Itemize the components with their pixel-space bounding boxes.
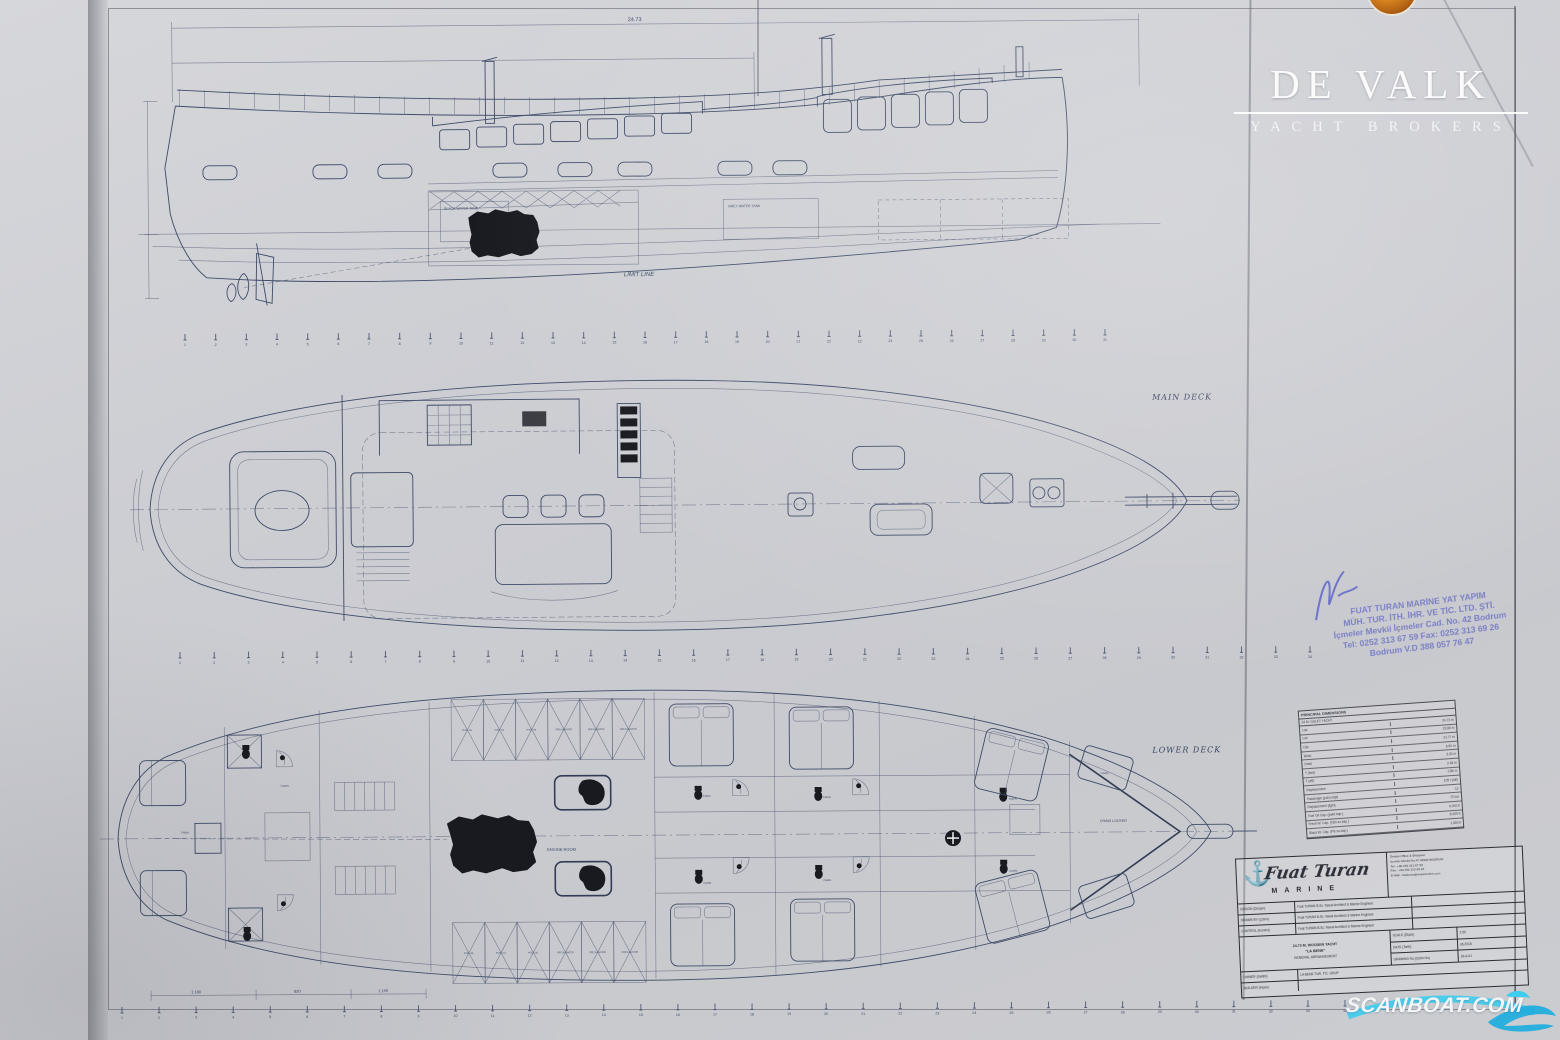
station-number: 7 — [343, 1015, 345, 1019]
station-number: 20 — [829, 658, 833, 662]
station-number: 30 — [1072, 338, 1076, 342]
station-number: 6 — [337, 342, 339, 346]
station-number: 20 — [824, 1012, 828, 1016]
station-number: 10 — [486, 659, 490, 663]
station-number: 31 — [1232, 1010, 1236, 1014]
station-number: 1 — [179, 661, 181, 665]
station-number: 10 — [454, 1014, 458, 1018]
station-number: 24 — [972, 1011, 976, 1015]
station-number: 13 — [565, 1013, 569, 1017]
station-number: 28 — [1103, 656, 1107, 660]
scanboat-watermark: SCANBOAT.COM — [1338, 982, 1560, 1038]
station-number: 15 — [639, 1013, 643, 1017]
station-number: 29 — [1042, 338, 1046, 342]
station-number: 14 — [582, 341, 586, 345]
station-number: 3 — [247, 661, 249, 665]
station-number: 33 — [1274, 655, 1278, 659]
station-number: 11 — [521, 659, 525, 663]
station-number: 16 — [643, 341, 647, 345]
station-number: 29 — [1158, 1010, 1162, 1014]
station-number: 26 — [1047, 1011, 1051, 1015]
station-number: 15 — [612, 341, 616, 345]
station-number: 17 — [726, 658, 730, 662]
station-number: 16 — [692, 658, 696, 662]
station-number: 16 — [676, 1013, 680, 1017]
station-number: 9 — [417, 1014, 419, 1018]
builder-sub-name: MARINE — [1271, 885, 1341, 895]
station-number: 25 — [1009, 1011, 1013, 1015]
station-number: 9 — [429, 342, 431, 346]
station-number: 13 — [589, 659, 593, 663]
station-number: 22 — [827, 340, 831, 344]
station-number: 4 — [282, 660, 284, 664]
station-number: 23 — [858, 339, 862, 343]
station-number: 8 — [419, 660, 421, 664]
station-number: 7 — [368, 342, 370, 346]
station-number: 19 — [787, 1012, 791, 1016]
station-number: 12 — [555, 659, 559, 663]
station-number: 6 — [350, 660, 352, 664]
station-number: 27 — [980, 339, 984, 343]
station-number: 23 — [935, 1011, 939, 1015]
station-number: 25 — [1000, 657, 1004, 661]
station-number: 25 — [919, 339, 923, 343]
station-number: 17 — [674, 340, 678, 344]
station-number: 2 — [215, 343, 217, 347]
station-number: 26 — [950, 339, 954, 343]
station-number: 31 — [1205, 656, 1209, 660]
station-number: 18 — [750, 1012, 754, 1016]
station-number: 5 — [316, 660, 318, 664]
station-number: 29 — [1137, 656, 1141, 660]
station-number: 22 — [897, 657, 901, 661]
station-number: 1 — [121, 1016, 123, 1020]
station-number: 3 — [245, 343, 247, 347]
station-number: 28 — [1011, 339, 1015, 343]
station-number: 12 — [528, 1014, 532, 1018]
station-number: 17 — [713, 1013, 717, 1017]
station-number: 20 — [766, 340, 770, 344]
station-number: 8 — [380, 1015, 382, 1019]
devalk-subtitle: YACHT BROKERS — [1228, 119, 1534, 136]
station-number: 30 — [1195, 1010, 1199, 1014]
station-number: 32 — [1240, 655, 1244, 659]
station-number: 15 — [657, 658, 661, 662]
station-number: 9 — [453, 660, 455, 664]
title-block: ⚓ Fuat Turan MARINE Design Office & Ship… — [1235, 846, 1529, 999]
station-number: 26 — [1034, 656, 1038, 660]
station-number: 11 — [491, 1014, 495, 1018]
station-number: 21 — [861, 1012, 865, 1016]
station-number: 13 — [551, 341, 555, 345]
station-number: 1 — [184, 343, 186, 347]
station-number: 5 — [307, 342, 309, 346]
project-title-cell: 24.73 M. WOODEN YACHT "LA BENE" GENERAL … — [1240, 931, 1392, 972]
falcon-badge-icon — [1364, 0, 1420, 18]
station-number: 28 — [1121, 1010, 1125, 1014]
station-number: 6 — [306, 1015, 308, 1019]
devalk-rule — [1234, 112, 1528, 114]
station-number: 27 — [1084, 1010, 1088, 1014]
station-number: 22 — [898, 1012, 902, 1016]
builder-script-name: Fuat Turan — [1263, 859, 1371, 884]
station-number: 12 — [520, 341, 524, 345]
scanned-drawing-sheet: 24.73 — [0, 0, 1560, 1040]
station-number: 19 — [735, 340, 739, 344]
station-number: 31 — [1103, 338, 1107, 342]
station-number: 33 — [1306, 1009, 1310, 1013]
station-number: 5 — [269, 1015, 271, 1019]
devalk-wordmark: DE VALK — [1228, 60, 1534, 108]
station-number: 18 — [704, 340, 708, 344]
devalk-logo: DE VALK YACHT BROKERS — [1228, 8, 1534, 136]
builder-logo: ⚓ Fuat Turan MARINE — [1236, 853, 1389, 904]
station-number: 14 — [602, 1013, 606, 1017]
station-number: 11 — [490, 341, 494, 345]
principal-dimensions-table: PRINCIPAL DIMENSIONS 24 M. GULET YACHT L… — [1298, 700, 1465, 839]
station-number: 4 — [276, 343, 278, 347]
station-number: 21 — [863, 657, 867, 661]
station-number: 24 — [888, 339, 892, 343]
station-number: 18 — [760, 658, 764, 662]
scanboat-text: SCANBOAT.COM — [1345, 994, 1524, 1018]
office-address: Design Office & Shipyardİçmeler Mevkii N… — [1387, 847, 1524, 897]
station-number: 2 — [213, 661, 215, 665]
station-number: 14 — [623, 659, 627, 663]
station-number: 3 — [195, 1016, 197, 1020]
station-number: 23 — [931, 657, 935, 661]
station-number: 10 — [459, 342, 463, 346]
station-number: 30 — [1171, 656, 1175, 660]
station-number: 24 — [966, 657, 970, 661]
station-number: 19 — [794, 658, 798, 662]
station-number: 4 — [232, 1015, 234, 1019]
station-number: 8 — [399, 342, 401, 346]
station-number: 32 — [1269, 1009, 1273, 1013]
station-number: 2 — [158, 1016, 160, 1020]
station-number: 21 — [796, 340, 800, 344]
station-number: 7 — [384, 660, 386, 664]
station-number: 27 — [1068, 656, 1072, 660]
